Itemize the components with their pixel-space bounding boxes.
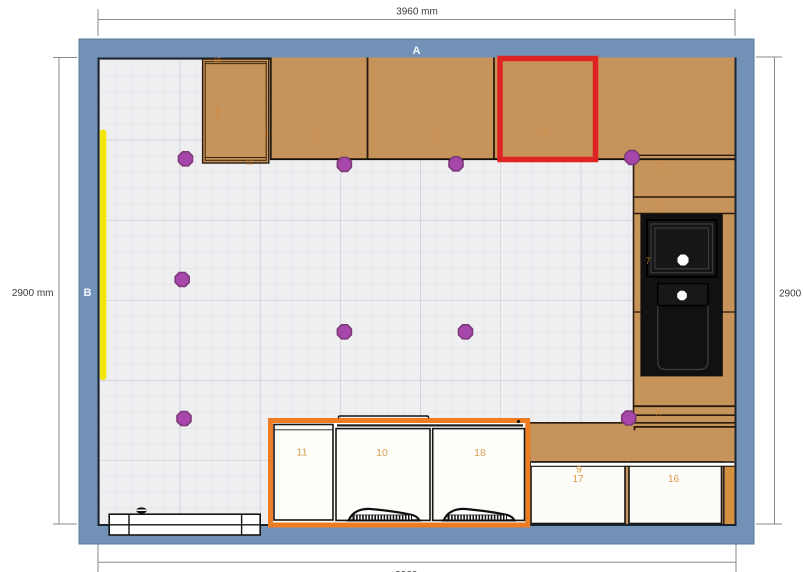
svg-text:18: 18 bbox=[474, 447, 486, 459]
svg-text:17: 17 bbox=[572, 474, 584, 485]
svg-text:8: 8 bbox=[656, 409, 661, 419]
svg-text:5: 5 bbox=[661, 161, 666, 171]
svg-text:10: 10 bbox=[376, 447, 388, 459]
svg-text:11: 11 bbox=[297, 447, 308, 459]
svg-text:3: 3 bbox=[315, 130, 320, 140]
svg-text:4: 4 bbox=[216, 114, 220, 121]
svg-text:4: 4 bbox=[265, 131, 269, 138]
svg-text:16: 16 bbox=[668, 474, 680, 485]
svg-text:3960 mm: 3960 mm bbox=[396, 7, 438, 18]
svg-text:6: 6 bbox=[655, 201, 660, 211]
svg-text:1: 1 bbox=[431, 131, 436, 141]
svg-text:2900 mm: 2900 mm bbox=[779, 289, 803, 300]
svg-text:7: 7 bbox=[646, 256, 651, 266]
svg-text:4: 4 bbox=[542, 128, 547, 138]
svg-text:B: B bbox=[84, 287, 92, 299]
svg-text:A: A bbox=[413, 45, 421, 57]
svg-text:12: 12 bbox=[246, 160, 254, 167]
svg-text:2900 mm: 2900 mm bbox=[12, 288, 54, 299]
svg-text:15: 15 bbox=[214, 57, 222, 64]
